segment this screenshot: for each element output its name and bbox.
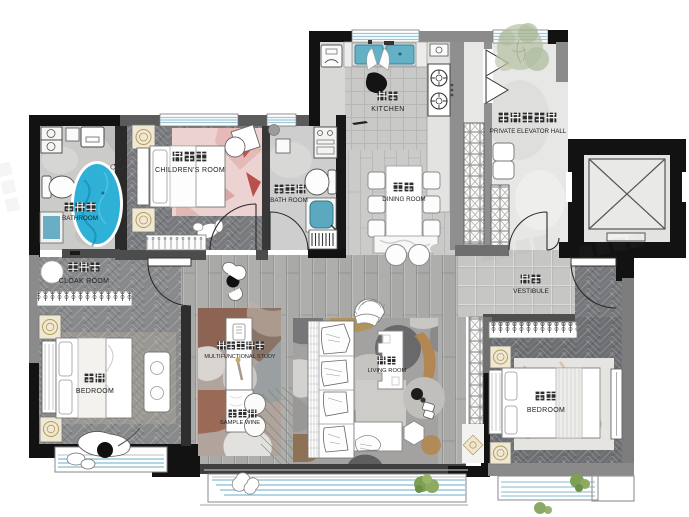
svg-text:CLOAK ROOM: CLOAK ROOM [59, 278, 109, 285]
svg-text:DINING ROOM: DINING ROOM [382, 196, 425, 203]
svg-text:VESTIBULE: VESTIBULE [513, 288, 549, 295]
svg-text:BATH ROOM: BATH ROOM [270, 197, 308, 204]
svg-text:LIVING ROOM: LIVING ROOM [368, 368, 407, 374]
svg-text:KITCHEN: KITCHEN [371, 106, 405, 113]
svg-text:PRIVATE ELEVATOR HALL: PRIVATE ELEVATOR HALL [490, 128, 567, 135]
svg-text:MULTIFUNCTIONAL STUDY: MULTIFUNCTIONAL STUDY [204, 354, 276, 360]
svg-text:BATHROOM: BATHROOM [62, 215, 98, 222]
svg-text:BEDROOM: BEDROOM [76, 388, 114, 395]
svg-text:SAMPLE WINE: SAMPLE WINE [220, 420, 260, 426]
svg-text:CHILDREN'S ROOM: CHILDREN'S ROOM [155, 167, 225, 174]
svg-text:BEDROOM: BEDROOM [527, 407, 565, 414]
